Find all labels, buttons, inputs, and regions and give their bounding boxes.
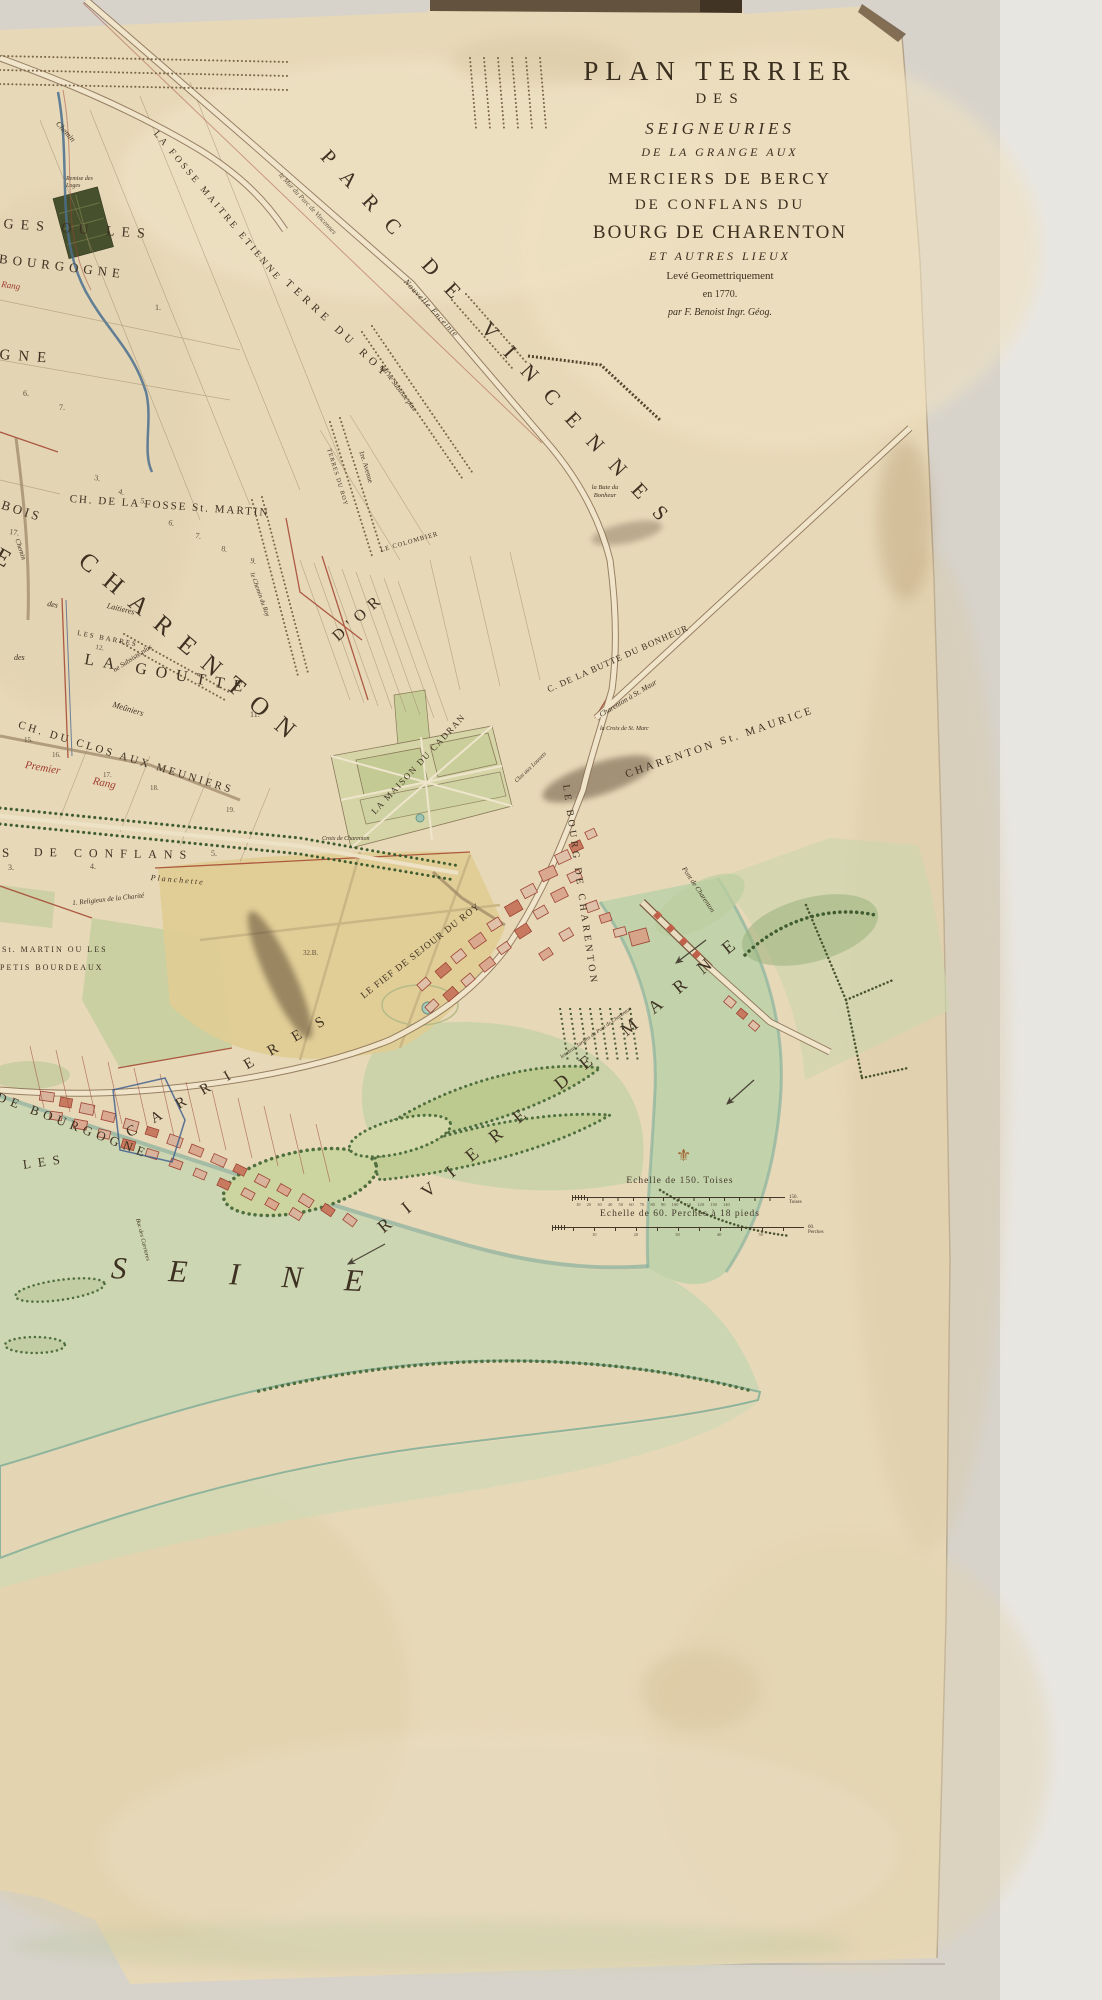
scale-perches-ticks: 10 20 30 40 50 — [592, 1232, 763, 1237]
parcel-number: 1. — [155, 304, 161, 312]
map-scan: PLAN TERRIER DES SEIGNEURIES DE LA GRANG… — [0, 0, 1102, 2000]
title-line: en 1770. — [548, 290, 892, 300]
small-label-des2: des — [14, 654, 25, 662]
title-line: MERCIERS DE BERCY — [548, 170, 892, 187]
scale-toises-ticks: 10 20 30 40 50 60 70 80 90 100 110 120 1… — [576, 1202, 730, 1207]
title-line: BOURG DE CHARENTON — [548, 223, 892, 242]
title-line: DE CONFLANS DU — [548, 198, 892, 213]
title-line: SEIGNEURIES — [548, 120, 892, 137]
title-line: ET AUTRES LIEUX — [548, 250, 892, 262]
place-label-bourdeaux: PETIS BOURDEAUX — [0, 964, 104, 972]
parcel-number: 6. — [23, 390, 29, 398]
scale-perches-title: Echelle de 60. Perches à 18 pieds — [552, 1209, 808, 1219]
parcel-number: 4. — [90, 863, 96, 871]
small-label-des1: des — [47, 600, 59, 610]
title-line: DES — [548, 92, 892, 107]
parcel-number: 7. — [59, 404, 65, 412]
title-line: PLAN TERRIER — [548, 58, 892, 85]
place-label-de-conflans: DE CONFLANS — [34, 846, 194, 861]
place-label-croix-charenton: Croix de Charenton — [322, 836, 370, 842]
place-label-croix-st-marc: la Croix de St. Marc — [600, 726, 649, 732]
parcel-number: 11. — [250, 711, 260, 719]
place-label-bute-bonheur: la Bute du Bonheur — [584, 484, 626, 500]
parcel-number: 18. — [150, 785, 159, 792]
fleur-de-lis-icon: ⚜ — [676, 1146, 691, 1166]
parcel-number: 32.B. — [303, 950, 318, 957]
place-label-remise: Remise des Loges — [66, 176, 102, 190]
parcel-number: 16. — [52, 752, 61, 759]
parcel-number: 3. — [8, 864, 14, 872]
parcel-number: 5. — [211, 850, 217, 858]
place-label-st-martin: St. MARTIN OU LES — [2, 946, 108, 954]
title-line: DE LA GRANGE AUX — [548, 146, 892, 158]
parcel-number: 15. — [24, 737, 33, 744]
title-line: Levé Geomettriquement — [548, 271, 892, 282]
parcel-number: 17. — [103, 772, 112, 779]
scale-toises-title: Echelle de 150. Toises — [552, 1176, 808, 1186]
scale-toises-end: 150. Toises — [789, 1195, 808, 1205]
title-line: par F. Benoist Ingr. Géog. — [548, 308, 892, 318]
parcel-number: 17. — [9, 528, 20, 538]
parcel-number: 12. — [95, 644, 105, 652]
place-label-s: S — [2, 846, 9, 859]
parcel-number: 19. — [226, 807, 235, 814]
scale-perches-end: 60. Perches — [808, 1225, 824, 1235]
scale-bars: Echelle de 150. Toises 10 20 30 40 50 60… — [552, 1170, 808, 1246]
title-cartouche: PLAN TERRIER DES SEIGNEURIES DE LA GRANG… — [548, 44, 892, 344]
